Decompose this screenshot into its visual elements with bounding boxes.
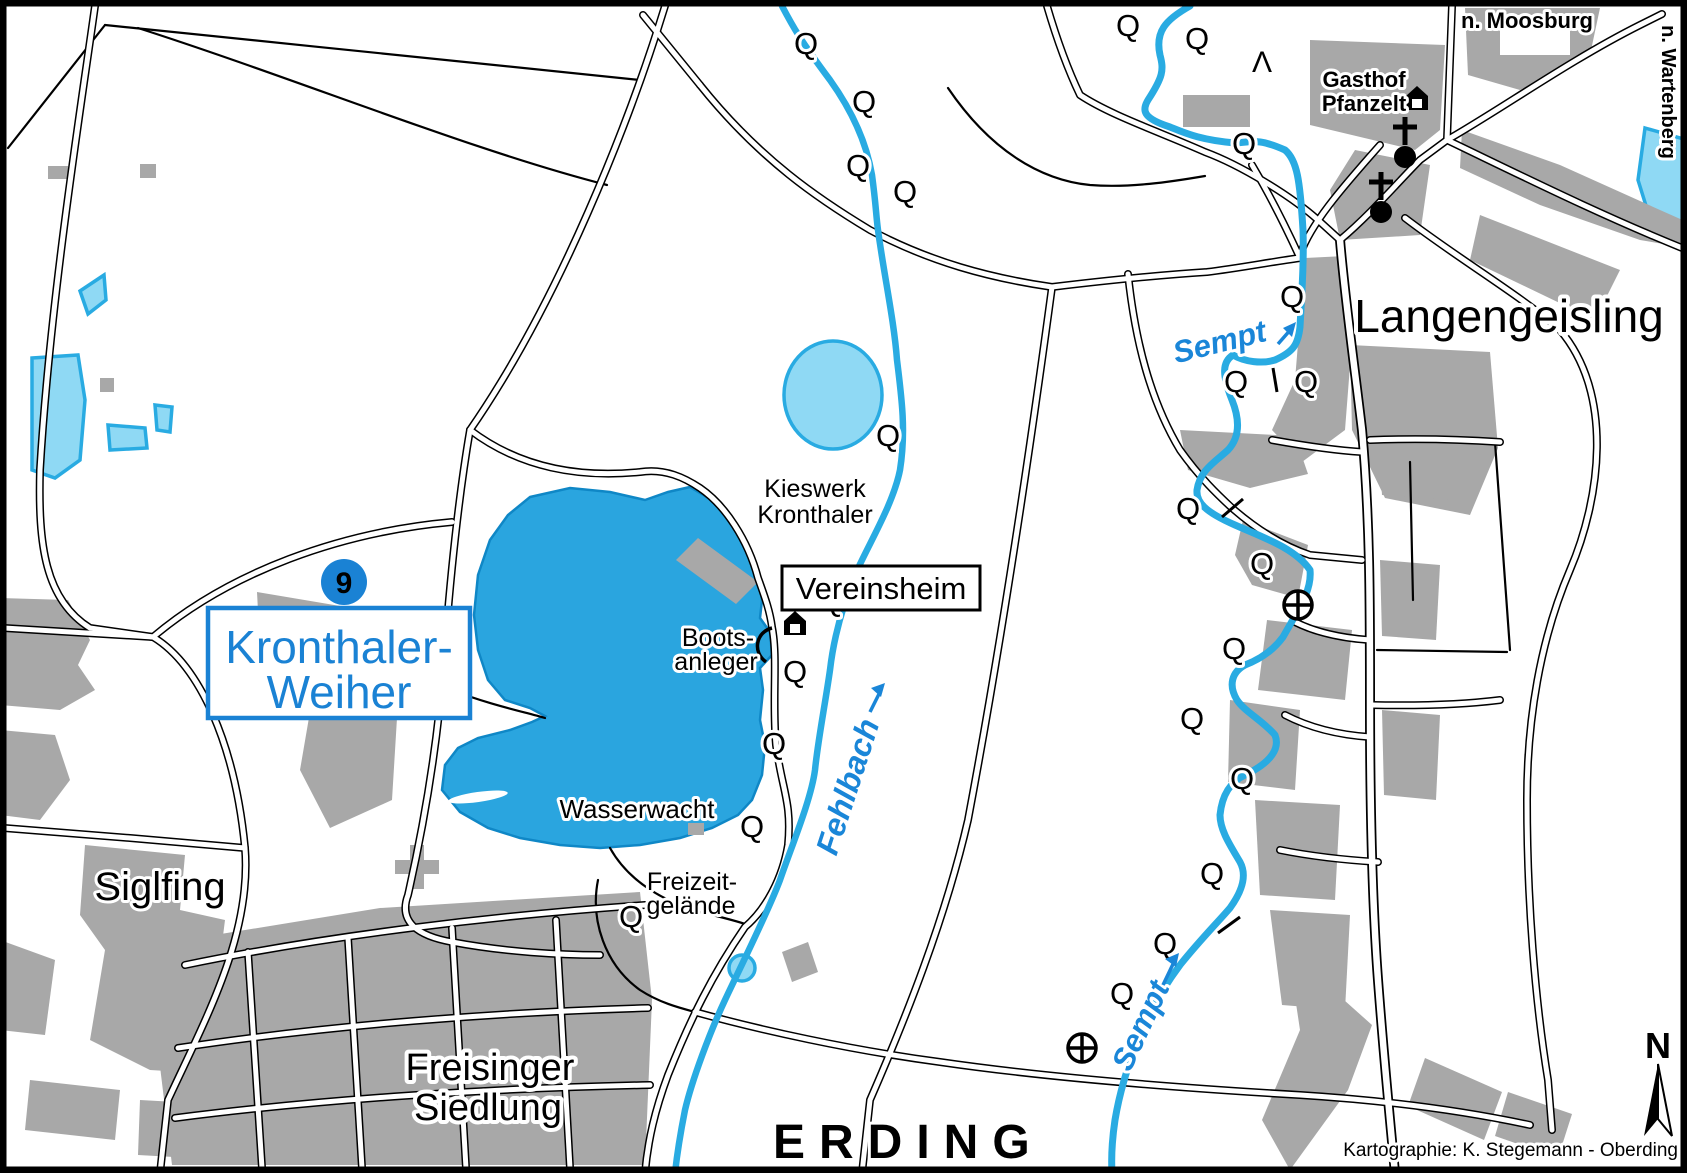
spring-symbol-icon: Q: [1250, 546, 1274, 581]
lake-number: 9: [336, 567, 353, 600]
spring-symbol-icon: Q: [794, 26, 818, 61]
spring-symbol-icon: Q: [1116, 8, 1140, 43]
spring-symbol-icon: Q: [1176, 491, 1200, 526]
freizeitgelaende-label-line2: gelände: [647, 892, 736, 920]
map-canvas: QQQQQQQQQQQQQQQQQQQQQQQQΛ 9 Kronthaler- …: [0, 0, 1687, 1173]
spring-symbol-icon: Q: [876, 418, 900, 453]
spring-symbol-icon: Q: [846, 148, 870, 183]
moosburg-direction-label: n. Moosburg: [1461, 8, 1593, 33]
langengeisling-label: Langengeisling: [1354, 290, 1664, 342]
topographic-map: QQQQQQQQQQQQQQQQQQQQQQQQΛ 9 Kronthaler- …: [0, 0, 1687, 1173]
round-pond: [784, 341, 882, 449]
pond: [108, 425, 147, 450]
spring-symbol-icon: Q: [1224, 364, 1248, 399]
spring-symbol-icon: Q: [1200, 856, 1224, 891]
spring-symbol-icon: Q: [1280, 279, 1304, 314]
siglfing-label: Siglfing: [94, 865, 225, 909]
spring-symbol-icon: Q: [1222, 631, 1246, 666]
spring-symbol-icon: Q: [852, 84, 876, 119]
pond: [155, 405, 172, 432]
gasthof-label-line2: Pfanzelt: [1322, 91, 1407, 116]
freisinger-siedlung-area: [158, 892, 652, 1165]
vereinsheim-label: Vereinsheim: [796, 571, 967, 606]
spring-symbol-icon: Q: [1294, 364, 1318, 399]
spring-symbol-icon: Q: [1230, 761, 1254, 796]
fehlbach-flow-arrow: [870, 683, 885, 712]
freisinger-label-line2: Siedlung: [414, 1087, 562, 1129]
compass-north: N: [1644, 1025, 1672, 1136]
lambda-symbol-icon: Λ: [1252, 46, 1272, 79]
streams-layer: [675, 6, 1310, 1173]
spring-symbol-icon: Q: [619, 899, 643, 934]
vereinsheim-house-icon: [784, 611, 806, 635]
wasserwacht-label: Wasserwacht: [559, 794, 715, 824]
erding-label: ERDING: [773, 1116, 1044, 1169]
spring-symbol-icon: Q: [783, 654, 807, 689]
bootsanleger-label-line2: anleger: [674, 648, 757, 676]
spring-symbol-icon: Q: [1180, 701, 1204, 736]
cross-in-circle-icon: [1068, 1034, 1096, 1062]
spring-symbol-icon: Q: [762, 726, 786, 761]
freisinger-label-line1: Freisinger: [406, 1047, 575, 1089]
compass-needle-right: [1658, 1064, 1672, 1136]
compass-needle-left: [1644, 1064, 1658, 1136]
spring-symbol-icon: Q: [1232, 126, 1256, 161]
wartenberg-direction-label: n. Wartenberg: [1657, 25, 1679, 159]
credit-label: Kartographie: K. Stegemann - Oberding: [1343, 1140, 1678, 1161]
kieswerk-label-line1: Kieswerk: [764, 475, 866, 503]
gasthof-label-line1: Gasthof: [1322, 67, 1406, 92]
compass-n-label: N: [1645, 1025, 1671, 1066]
water-layer: [32, 128, 1687, 981]
lake-name-line2: Weiher: [267, 666, 412, 718]
spring-symbol-icon: Q: [893, 174, 917, 209]
spring-symbol-icon: Q: [1185, 21, 1209, 56]
cross-in-circle-icon: [1284, 591, 1312, 619]
kieswerk-label-line2: Kronthaler: [757, 501, 872, 529]
pond: [80, 275, 106, 314]
spring-symbol-icon: Q: [740, 809, 764, 844]
